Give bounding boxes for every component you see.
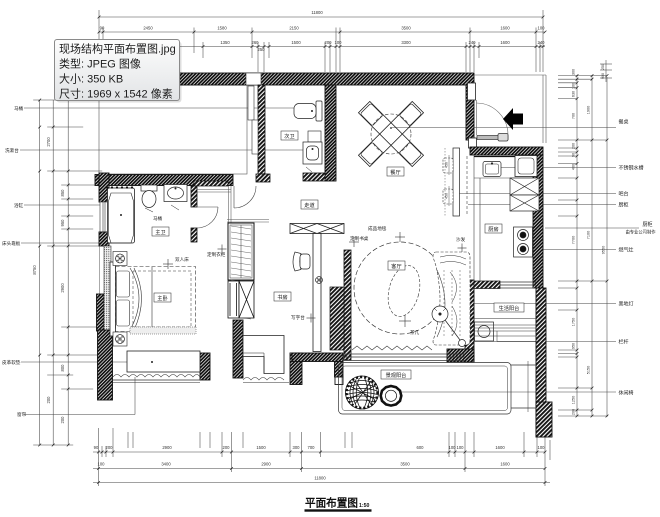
svg-text:生活阳台: 生活阳台 (499, 304, 520, 312)
svg-text:厨房: 厨房 (488, 225, 498, 233)
svg-text:2900: 2900 (261, 462, 271, 467)
svg-text:950: 950 (60, 219, 65, 227)
svg-text:主卧: 主卧 (157, 294, 167, 302)
svg-text:厨柜: 厨柜 (619, 202, 629, 209)
svg-text:100: 100 (538, 445, 546, 450)
svg-text:450: 450 (445, 162, 449, 168)
svg-text:走道: 走道 (304, 201, 314, 209)
svg-text:主卫: 主卫 (155, 228, 165, 236)
svg-text:燃气灶: 燃气灶 (619, 247, 634, 254)
svg-text:1250: 1250 (572, 396, 576, 404)
svg-text:800: 800 (60, 364, 65, 372)
svg-text:630: 630 (572, 91, 576, 97)
svg-text:200: 200 (572, 143, 576, 149)
svg-text:书房: 书房 (277, 293, 287, 301)
svg-text:900: 900 (601, 73, 605, 79)
svg-text:100: 100 (538, 26, 546, 31)
svg-text:9550: 9550 (602, 246, 606, 254)
svg-text:600: 600 (417, 445, 425, 450)
svg-text:2700: 2700 (46, 137, 51, 147)
svg-text:3500: 3500 (400, 462, 410, 467)
svg-text:黑地灯: 黑地灯 (619, 301, 634, 308)
svg-text:240: 240 (538, 40, 546, 45)
svg-text:8750: 8750 (32, 265, 37, 275)
svg-text:1350: 1350 (220, 40, 230, 45)
svg-text:现场结构平面布置图.jpg: 现场结构平面布置图.jpg (59, 42, 176, 56)
svg-text:950: 950 (572, 343, 576, 349)
svg-text:客厅: 客厅 (391, 262, 401, 270)
svg-text:100: 100 (98, 462, 106, 467)
svg-text:皮革软垫: 皮革软垫 (2, 359, 21, 366)
svg-text:1600: 1600 (495, 445, 505, 450)
svg-text:700: 700 (308, 445, 316, 450)
svg-text:100: 100 (449, 445, 457, 450)
svg-text:300: 300 (293, 445, 301, 450)
svg-text:尺寸: 1969 x 1542 像素: 尺寸: 1969 x 1542 像素 (59, 87, 173, 101)
svg-text:100: 100 (457, 445, 465, 450)
svg-text:200: 200 (46, 396, 51, 404)
svg-text:700: 700 (572, 113, 576, 119)
svg-text:平面布置图: 平面布置图 (305, 497, 358, 510)
svg-text:450: 450 (445, 193, 449, 199)
svg-text:1:50: 1:50 (359, 503, 369, 509)
svg-text:200: 200 (572, 409, 576, 415)
svg-text:景观阳台: 景观阳台 (386, 371, 407, 379)
svg-text:1500: 1500 (256, 445, 266, 450)
svg-text:洗漱台: 洗漱台 (5, 147, 19, 154)
svg-text:11800: 11800 (314, 476, 326, 481)
svg-text:马桶: 马桶 (153, 215, 163, 222)
svg-text:定制书桌: 定制书桌 (350, 235, 369, 242)
svg-text:200: 200 (223, 445, 231, 450)
svg-text:吧台: 吧台 (619, 191, 629, 198)
svg-text:2900: 2900 (60, 283, 65, 293)
svg-text:1580: 1580 (217, 26, 227, 31)
svg-text:2150: 2150 (289, 26, 299, 31)
svg-text:2450: 2450 (143, 26, 153, 31)
svg-text:200: 200 (60, 416, 65, 424)
svg-text:2900: 2900 (162, 445, 172, 450)
svg-text:栏杆: 栏杆 (619, 339, 629, 346)
svg-text:300: 300 (572, 69, 576, 75)
svg-text:11800: 11800 (311, 10, 323, 15)
svg-text:90: 90 (100, 26, 105, 31)
svg-text:大小: 350 KB: 大小: 350 KB (59, 72, 123, 86)
svg-text:200: 200 (325, 40, 333, 45)
svg-text:260: 260 (252, 40, 260, 45)
svg-text:1600: 1600 (500, 26, 510, 31)
svg-text:不锈钢水槽: 不锈钢水槽 (619, 165, 644, 172)
svg-text:床头靠板: 床头靠板 (2, 240, 21, 247)
svg-text:1600: 1600 (500, 40, 510, 45)
svg-text:1900: 1900 (587, 106, 591, 114)
svg-text:3400: 3400 (161, 462, 171, 467)
svg-text:休闲椅: 休闲椅 (619, 390, 634, 397)
svg-text:茶几: 茶几 (410, 329, 420, 336)
svg-text:由专业公司制作: 由专业公司制作 (626, 229, 657, 236)
svg-text:90: 90 (572, 153, 576, 157)
svg-text:100: 100 (572, 83, 576, 89)
svg-text:马桶: 马桶 (14, 105, 24, 112)
svg-text:400: 400 (572, 164, 576, 170)
svg-text:次卫: 次卫 (284, 132, 294, 140)
svg-text:双人床: 双人床 (175, 256, 189, 263)
svg-text:成品地毯: 成品地毯 (368, 225, 387, 232)
svg-text:850: 850 (60, 189, 65, 197)
svg-text:厨柜: 厨柜 (643, 221, 653, 228)
svg-text:90: 90 (94, 445, 99, 450)
svg-text:250: 250 (601, 64, 605, 70)
svg-text:7100: 7100 (587, 231, 591, 239)
svg-text:浴缸: 浴缸 (14, 202, 24, 209)
svg-text:写字台: 写字台 (291, 314, 305, 321)
svg-text:100: 100 (335, 40, 343, 45)
svg-text:7700: 7700 (572, 236, 576, 244)
svg-text:240: 240 (469, 40, 477, 45)
svg-text:5150: 5150 (587, 366, 591, 374)
svg-text:定制衣柜: 定制衣柜 (207, 251, 226, 258)
svg-text:200: 200 (106, 445, 114, 450)
svg-text:250: 250 (258, 47, 266, 52)
svg-text:1750: 1750 (572, 318, 576, 326)
svg-text:3500: 3500 (401, 26, 411, 31)
svg-text:3300: 3300 (401, 40, 411, 45)
svg-text:1500: 1500 (291, 40, 301, 45)
svg-text:餐桌: 餐桌 (619, 119, 629, 126)
svg-text:1600: 1600 (500, 462, 510, 467)
svg-text:类型: JPEG 图像: 类型: JPEG 图像 (59, 57, 141, 71)
svg-text:沙发: 沙发 (456, 236, 466, 243)
svg-text:餐厅: 餐厅 (390, 168, 400, 176)
